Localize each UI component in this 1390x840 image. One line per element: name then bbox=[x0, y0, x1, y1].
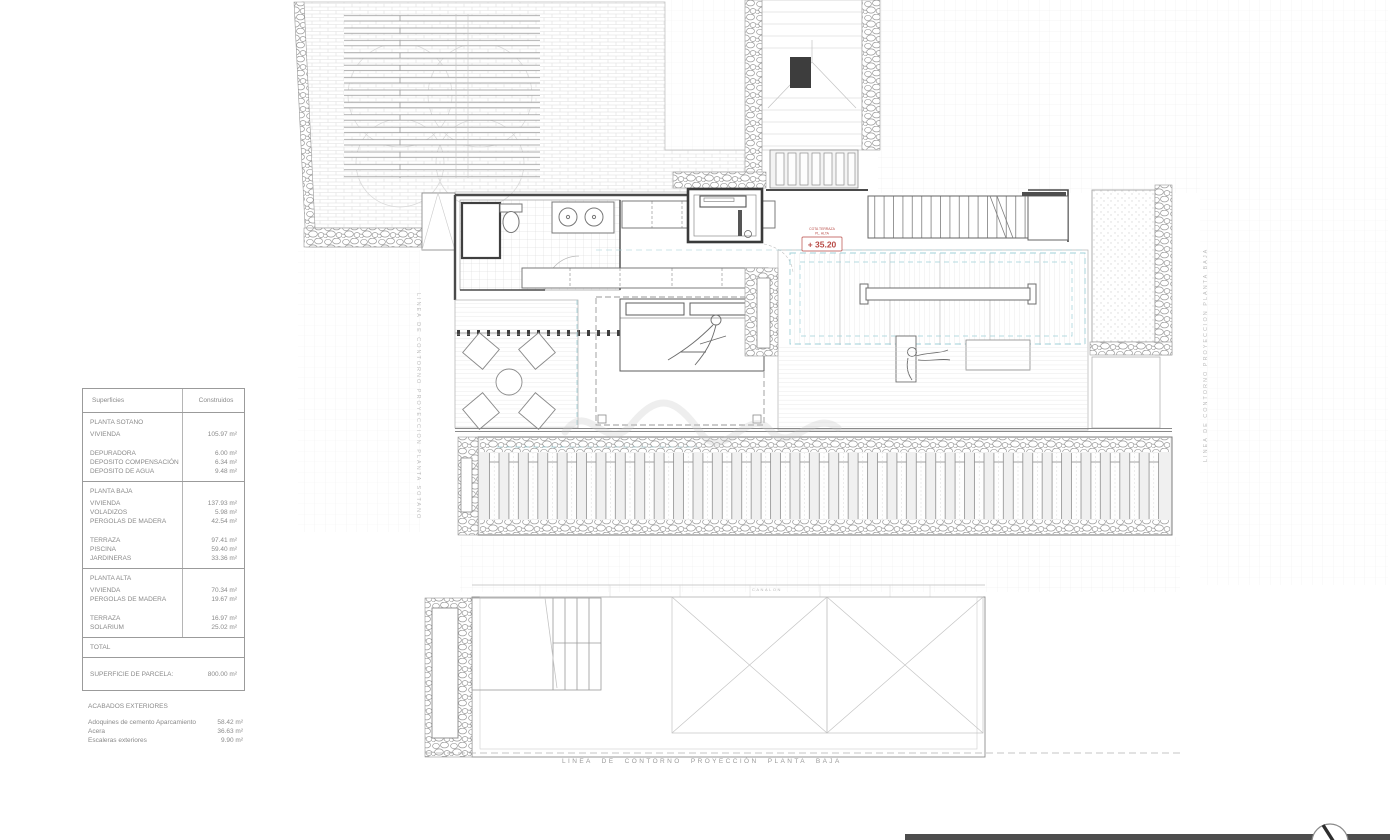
planter-box bbox=[422, 193, 455, 250]
total-row: TOTAL bbox=[83, 638, 244, 658]
annotation-left-vertical: LINEA DE CONTORNO PROYECCION PLANTA SOTA… bbox=[415, 293, 421, 520]
stone-planter-mid bbox=[745, 268, 778, 356]
table-row: VIVIENDA105.97 m² bbox=[83, 430, 244, 439]
table-row: VOLADIZOS5.98 m² bbox=[83, 508, 244, 517]
table-row: TERRAZA97.41 m² bbox=[83, 536, 244, 545]
stone-wall-left bbox=[745, 0, 762, 190]
annotation-right-vertical: LINEA DE CONTORNO PROYECCION PLANTA BAJA bbox=[1203, 248, 1209, 462]
annotation-bottom: LINEA DE CONTORNO PROYECCIÓN PLANTA BAJA bbox=[562, 756, 842, 765]
table-row: PERGOLAS DE MADERA42.54 m² bbox=[83, 517, 244, 526]
table-row: DEPOSITO DE AGUA9.48 m² bbox=[83, 467, 244, 476]
table-row: SOLARIUM25.02 m² bbox=[83, 623, 244, 632]
access-marker bbox=[790, 57, 811, 88]
finish-row: Escaleras exteriores9.90 m² bbox=[88, 736, 250, 745]
level-marker-value: + 35.20 bbox=[808, 240, 837, 250]
lower-terrace bbox=[425, 585, 1180, 757]
section-title: PLANTA BAJA bbox=[83, 485, 244, 499]
table-row: PERGOLAS DE MADERA19.67 m² bbox=[83, 595, 244, 604]
bed bbox=[620, 299, 764, 371]
finish-row: Acera36.63 m² bbox=[88, 727, 250, 736]
section-planta-baja: PLANTA BAJA VIVIENDA137.93 m² VOLADIZOS5… bbox=[83, 482, 244, 569]
level-marker-label-1: COTA TERRAZA bbox=[809, 227, 835, 231]
shower-enclosure bbox=[462, 203, 500, 258]
section-planta-alta: PLANTA ALTA VIVIENDA70.34 m² PERGOLAS DE… bbox=[83, 569, 244, 638]
areas-table-header: Superficies Construidos bbox=[83, 389, 244, 413]
planter-lower bbox=[432, 608, 458, 738]
table-row: TERRAZA16.97 m² bbox=[83, 614, 244, 623]
table-row: DEPOSITO COMPENSACIÓN6.34 m² bbox=[83, 458, 244, 467]
gravel-area bbox=[1090, 185, 1172, 428]
annotation-gutter: CANALON bbox=[752, 587, 782, 592]
level-marker: COTA TERRAZA PL. ALTA + 35.20 bbox=[802, 227, 842, 251]
table-row: DEPURADORA6.00 m² bbox=[83, 449, 244, 458]
pergola-slats bbox=[344, 14, 540, 178]
staircase-upper bbox=[868, 192, 1068, 240]
stone-edge-bottom bbox=[304, 228, 422, 247]
section-planta-sotano: PLANTA SOTANO VIVIENDA105.97 m² DEPURADO… bbox=[83, 413, 244, 482]
table-row: VIVIENDA70.34 m² bbox=[83, 586, 244, 595]
double-sink bbox=[552, 202, 614, 233]
elevator bbox=[688, 189, 793, 272]
finish-row: Adoquines de cemento Aparcamiento58.42 m… bbox=[88, 718, 250, 727]
section-title: PLANTA ALTA bbox=[83, 572, 244, 586]
deck-right bbox=[778, 345, 1088, 428]
table-row: JARDINERAS33.36 m² bbox=[83, 554, 244, 563]
areas-table: Superficies Construidos PLANTA SOTANO VI… bbox=[82, 388, 245, 691]
exterior-finishes-title: ACABADOS EXTERIORES bbox=[88, 702, 250, 711]
level-marker-label-2: PL. ALTA bbox=[815, 232, 830, 236]
exterior-finishes: ACABADOS EXTERIORES Adoquines de cemento… bbox=[88, 702, 250, 745]
section-title: PLANTA SOTANO bbox=[83, 416, 244, 430]
stone-wall-right bbox=[862, 0, 880, 150]
header-construidos: Construidos bbox=[188, 396, 244, 405]
round-table bbox=[496, 369, 522, 395]
header-superficies: Superficies bbox=[83, 396, 188, 405]
table-row: VIVIENDA137.93 m² bbox=[83, 499, 244, 508]
sheet-edge bbox=[905, 824, 1390, 840]
deck-terrace-left bbox=[455, 300, 578, 429]
lower-pergola bbox=[458, 437, 1172, 535]
table-row: PISCINA59.40 m² bbox=[83, 545, 244, 554]
main-building bbox=[455, 185, 1172, 432]
parcel-row: SUPERFICIE DE PARCELA: 800.00 m² bbox=[83, 658, 244, 690]
plan-sheet: COTA TERRAZA PL. ALTA + 35.20 LINEA DE C… bbox=[0, 0, 1390, 840]
